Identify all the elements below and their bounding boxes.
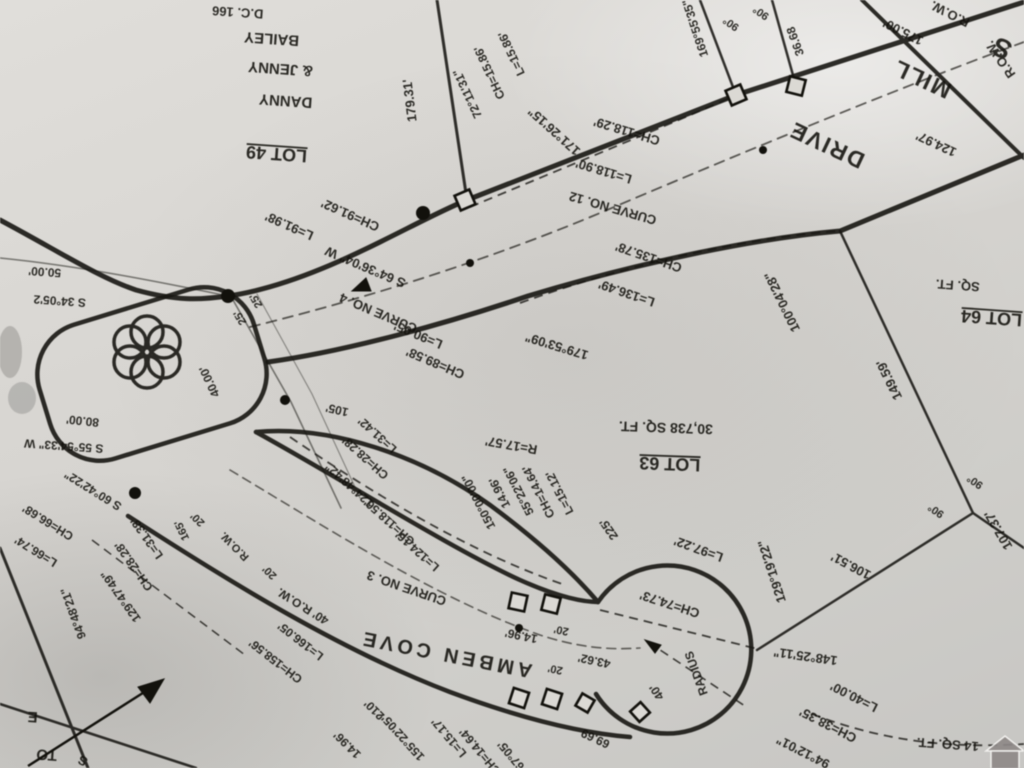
map-label: CH=66.68' (20, 501, 76, 543)
map-label: L=166.05' (275, 619, 326, 663)
map-label: 94°48'21" (58, 586, 89, 641)
map-label: BAILEY (244, 28, 300, 49)
label-lot-63: LOT 63 (639, 453, 701, 475)
label-lot-49: LOT 49 (245, 142, 307, 166)
map-label: L=15.86' (495, 29, 528, 78)
map-label: 69.69 (578, 726, 611, 752)
map-label: 67°05' (494, 738, 527, 768)
map-label: L=136.49' (596, 277, 656, 310)
chord-curve12 (470, 95, 736, 207)
map-label: 90° (751, 3, 772, 22)
map-label: 40' (646, 681, 667, 702)
map-label: L=40.00' (828, 679, 880, 716)
map-label: S 34°05'2 (33, 292, 87, 310)
map-label: CH=38.35' (797, 704, 859, 746)
dashed-chord-lines (92, 95, 1024, 745)
map-label: 179°53'09" (523, 330, 590, 363)
map-label: R=17.57' (484, 433, 538, 457)
map-label: 14.96' (330, 728, 363, 761)
node-dots (129, 146, 767, 632)
map-label: 20' (552, 622, 569, 637)
map-label: D.C. 166 (212, 3, 264, 22)
marker-square (509, 593, 528, 612)
map-label: 20' (188, 509, 207, 528)
radius-arrow-head (645, 640, 661, 653)
map-label: 165' (172, 518, 192, 542)
map-label: 20' (546, 661, 563, 676)
marker-square (455, 190, 476, 211)
map-label: 90° (926, 501, 947, 520)
map-label: 169°55'35" (679, 0, 711, 59)
plat-map-photo: D.C. 166BAILEY& JENNYDANNYLOT 49179.31'L… (0, 0, 1024, 768)
map-label: CH=118.29' (592, 114, 662, 148)
map-label: 106.51' (828, 549, 873, 582)
node-dot (759, 146, 767, 154)
plat-map-svg: D.C. 166BAILEY& JENNYDANNYLOT 49179.31'L… (0, 0, 1024, 768)
map-label: 14 SQ. FT. (916, 735, 979, 754)
map-label: DANNY (258, 90, 312, 111)
map-label: 30,738 SQ. FT. (618, 418, 713, 437)
lot-boundary-lines (0, 0, 1024, 768)
map-label: S 55°54'33" W (23, 436, 104, 456)
map-label: CH=74.73' (638, 588, 702, 621)
map-label: 129°19'22" (755, 538, 789, 605)
map-label: 100°04'28" (761, 269, 803, 334)
node-dot (416, 206, 430, 220)
cul-de-sac-circle (596, 566, 751, 734)
map-label: 80.00' (65, 412, 99, 429)
map-label: 124.97' (914, 128, 959, 160)
map-label: 105' (324, 400, 350, 419)
map-label: 148°25'11" (772, 645, 838, 669)
map-label: 90° (965, 472, 986, 491)
marker-square (575, 693, 594, 712)
label-road-mill-drive: MILL (888, 54, 955, 104)
map-label: 225' (596, 516, 621, 543)
node-dot (280, 395, 290, 405)
map-label: L=97.22' (672, 533, 725, 565)
map-label: 171°26'15" (525, 104, 583, 159)
map-label: 50.00' (28, 264, 62, 280)
map-labels-layer: D.C. 166BAILEY& JENNYDANNYLOT 49179.31'L… (12, 0, 1023, 768)
map-label: L=118.90' (574, 156, 634, 187)
map-label: RADIUS (682, 649, 711, 697)
watermark-house-icon (986, 736, 1024, 768)
map-label: 149.59' (873, 357, 905, 402)
map-label: L=66.74' (12, 533, 60, 570)
marker-square (726, 85, 747, 106)
map-label: S 60°42'22" (62, 467, 124, 513)
shadow-blob (0, 326, 22, 378)
node-dot (129, 487, 141, 499)
map-label: 20' (260, 562, 279, 581)
map-label: R.O.W. (218, 529, 252, 563)
flower-symbol-icon (114, 316, 180, 388)
map-label: 107.37' (981, 508, 1015, 553)
map-label: 179.31' (399, 78, 419, 122)
centerline-arrow-head (352, 278, 371, 291)
map-label: E (27, 708, 38, 726)
marker-square (509, 688, 529, 708)
corridor-line-b (257, 294, 360, 498)
label-lot-64: LOT 64 (960, 306, 1022, 330)
map-label: 94°12'01" (774, 732, 832, 768)
map-label: DRIVE (785, 117, 869, 174)
lot64-west-boundary (840, 231, 973, 513)
north-arrow-head (138, 679, 164, 703)
map-label: TO (36, 745, 58, 763)
marker-square (630, 702, 650, 722)
map-label: 40.00' (196, 364, 223, 400)
marker-square (541, 594, 560, 613)
map-label: SQ. FT. (935, 276, 980, 294)
marker-square (786, 76, 805, 95)
marker-square (542, 689, 562, 709)
map-label: L=91.98' (263, 209, 316, 244)
node-dot (221, 289, 235, 303)
map-label: & JENNY (248, 58, 314, 79)
map-label: 43.62' (576, 651, 611, 672)
node-dot (466, 259, 474, 267)
shadow-blob (8, 382, 36, 414)
map-label: 155°22'05" (377, 710, 428, 764)
map-label: 90° (721, 14, 742, 33)
map-label: CH=91.62' (319, 196, 382, 235)
